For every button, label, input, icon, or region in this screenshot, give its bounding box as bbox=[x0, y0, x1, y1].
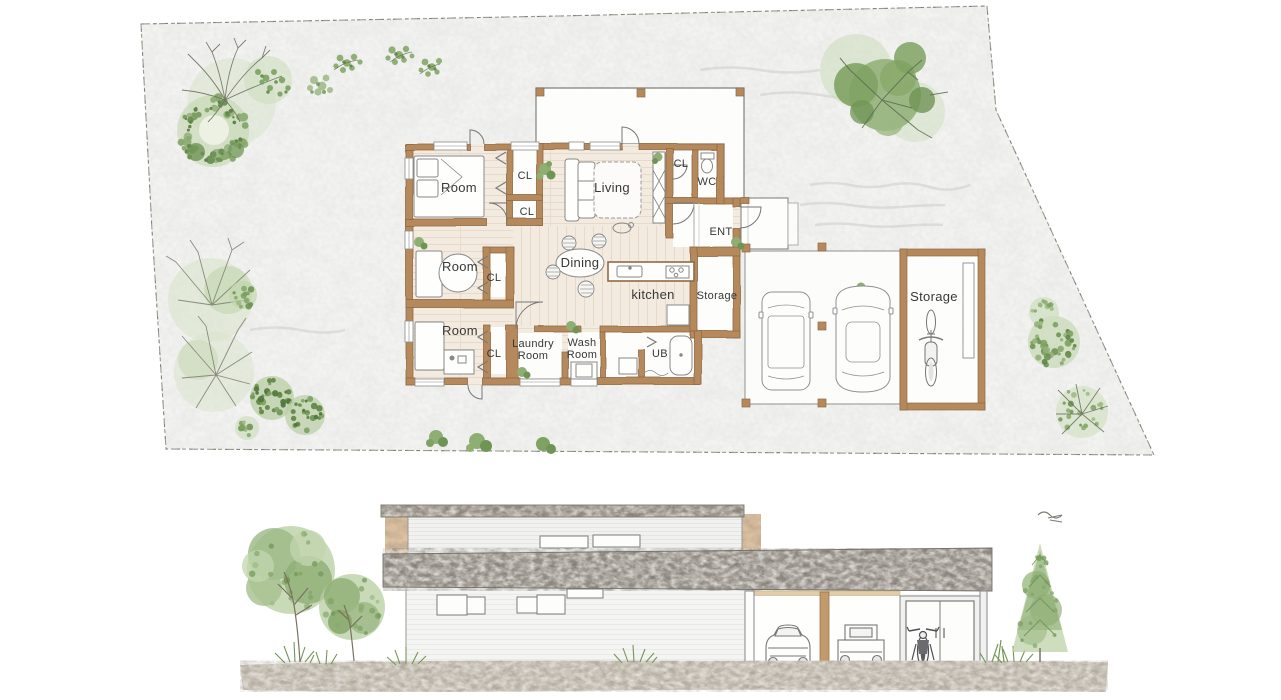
svg-text:CL: CL bbox=[674, 158, 689, 170]
svg-text:Dining: Dining bbox=[561, 255, 600, 270]
svg-text:CL: CL bbox=[487, 272, 502, 284]
svg-text:CL: CL bbox=[518, 170, 533, 182]
svg-text:CL: CL bbox=[520, 206, 535, 218]
svg-text:Room: Room bbox=[441, 180, 477, 195]
svg-text:ENT: ENT bbox=[710, 226, 733, 238]
svg-text:Room: Room bbox=[442, 259, 478, 274]
svg-text:CL: CL bbox=[487, 348, 502, 360]
svg-text:Living: Living bbox=[594, 180, 630, 195]
svg-text:Storage: Storage bbox=[910, 289, 958, 304]
svg-text:Laundry: Laundry bbox=[512, 338, 554, 350]
svg-text:Room: Room bbox=[567, 349, 598, 361]
svg-text:Room: Room bbox=[518, 350, 549, 362]
svg-text:Wash: Wash bbox=[568, 337, 597, 349]
svg-text:Storage: Storage bbox=[697, 290, 738, 302]
svg-text:WC: WC bbox=[698, 176, 717, 188]
svg-text:UB: UB bbox=[652, 348, 668, 360]
svg-text:kitchen: kitchen bbox=[631, 287, 674, 302]
svg-text:Room: Room bbox=[442, 323, 478, 338]
